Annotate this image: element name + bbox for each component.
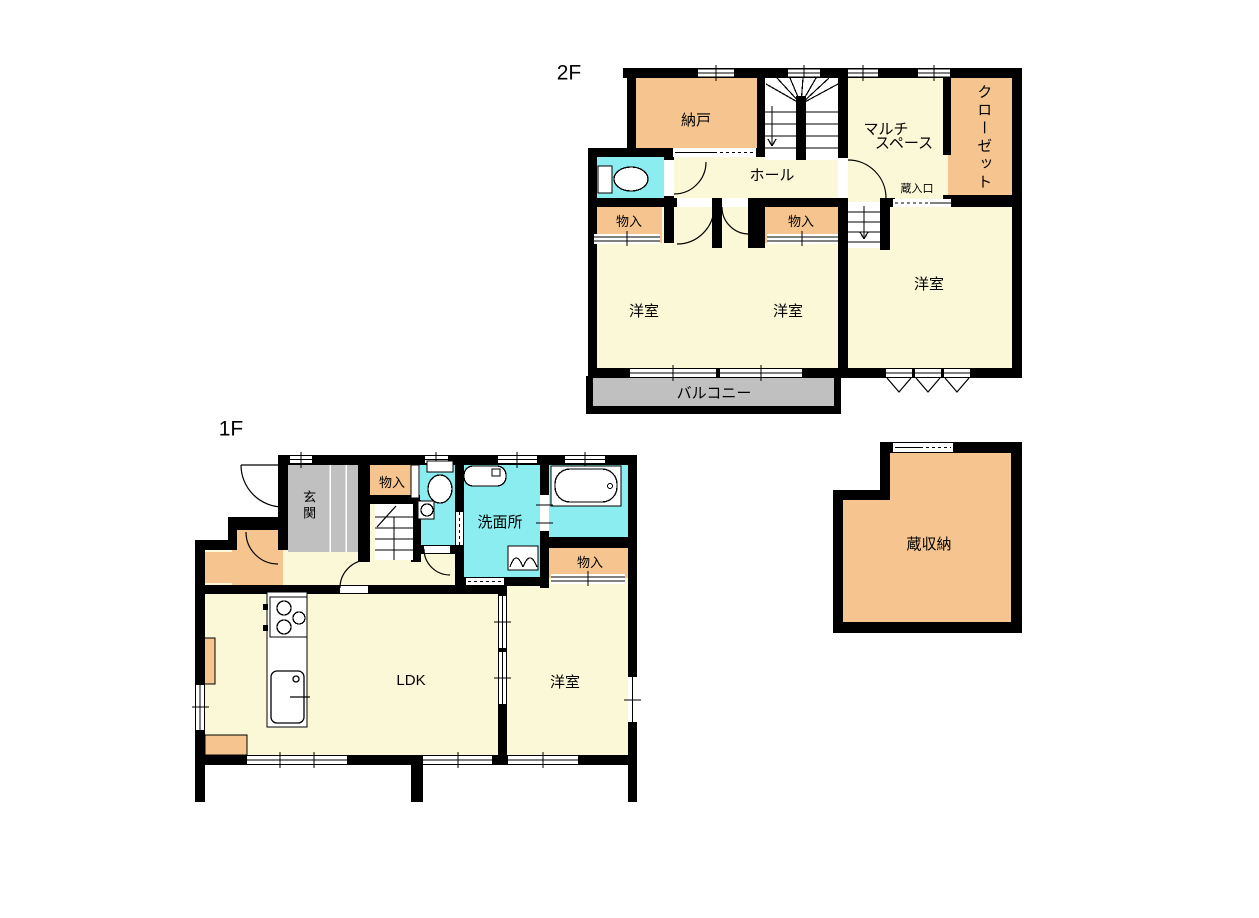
room-label-hall: ホール: [749, 168, 794, 185]
room-label-ldk: LDK: [396, 673, 425, 690]
room-label-yoshitsu-left: 洋室: [629, 304, 659, 321]
room-label-closet: クローゼット: [975, 84, 992, 192]
kura-stairs-2f: [848, 202, 880, 248]
floor-plan-canvas: 2F 納戸 マルチ スペース クローゼット ホール 蔵入口 物入 物入 洋室 洋…: [0, 0, 1259, 918]
floor-plan-drawing: [0, 0, 1259, 918]
washbasin-icon: [464, 466, 506, 486]
room-label-nando: 納戸: [681, 113, 711, 130]
bathtub-icon: [551, 466, 621, 506]
room-label-yoshitsu-mid: 洋室: [773, 304, 803, 321]
room-label-genkan: 玄関: [301, 490, 315, 522]
room-label-mono-1f-right: 物入: [577, 556, 603, 570]
room-label-yoshitsu-right: 洋室: [914, 277, 944, 294]
room-label-kura: 蔵収納: [906, 537, 951, 554]
label-kura-entrance: 蔵入口: [901, 183, 934, 195]
staircase-2f: [765, 78, 838, 160]
floor1-plan: [192, 452, 641, 802]
floor1-label: 1F: [219, 417, 244, 440]
room-label-mono-2f-left: 物入: [616, 215, 642, 229]
staircase-1f: [375, 504, 413, 560]
washer-pan-icon: [508, 546, 538, 570]
room-label-mono-1f-top: 物入: [379, 476, 405, 490]
toilet-icon-2f: [598, 166, 648, 193]
room-label-multi-2: スペース: [875, 136, 933, 153]
floor2-plan: [586, 65, 1022, 414]
floor2-label: 2F: [557, 61, 582, 84]
room-label-mono-2f-right: 物入: [788, 215, 814, 229]
room-label-balcony: バルコニー: [677, 386, 752, 403]
room-label-senmenjo: 洗面所: [477, 515, 522, 532]
kitchen-unit: [263, 592, 310, 727]
room-label-yoshitsu-1f: 洋室: [550, 675, 580, 692]
